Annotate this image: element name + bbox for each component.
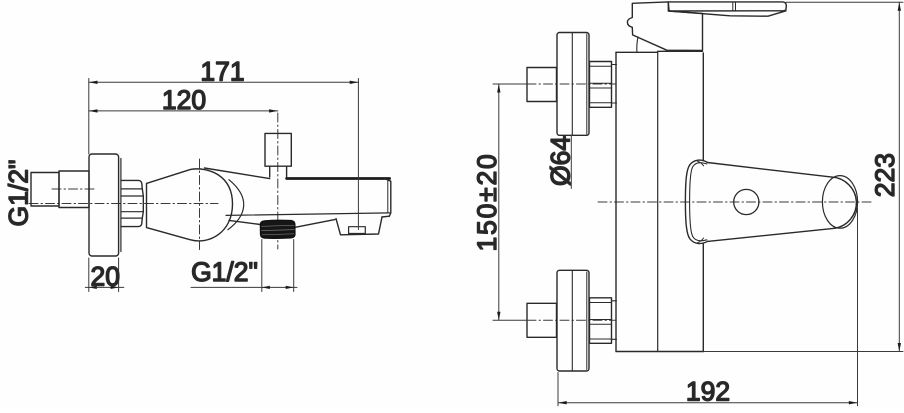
svg-text:Ø64: Ø64 <box>546 136 576 186</box>
svg-text:120: 120 <box>162 85 206 115</box>
svg-text:G1/2": G1/2" <box>3 160 33 227</box>
svg-text:G1/2": G1/2" <box>191 257 258 287</box>
svg-text:171: 171 <box>200 56 244 86</box>
svg-text:192: 192 <box>686 377 730 407</box>
svg-text:20: 20 <box>91 261 120 291</box>
svg-text:150±20: 150±20 <box>472 152 502 251</box>
svg-text:223: 223 <box>870 153 900 197</box>
